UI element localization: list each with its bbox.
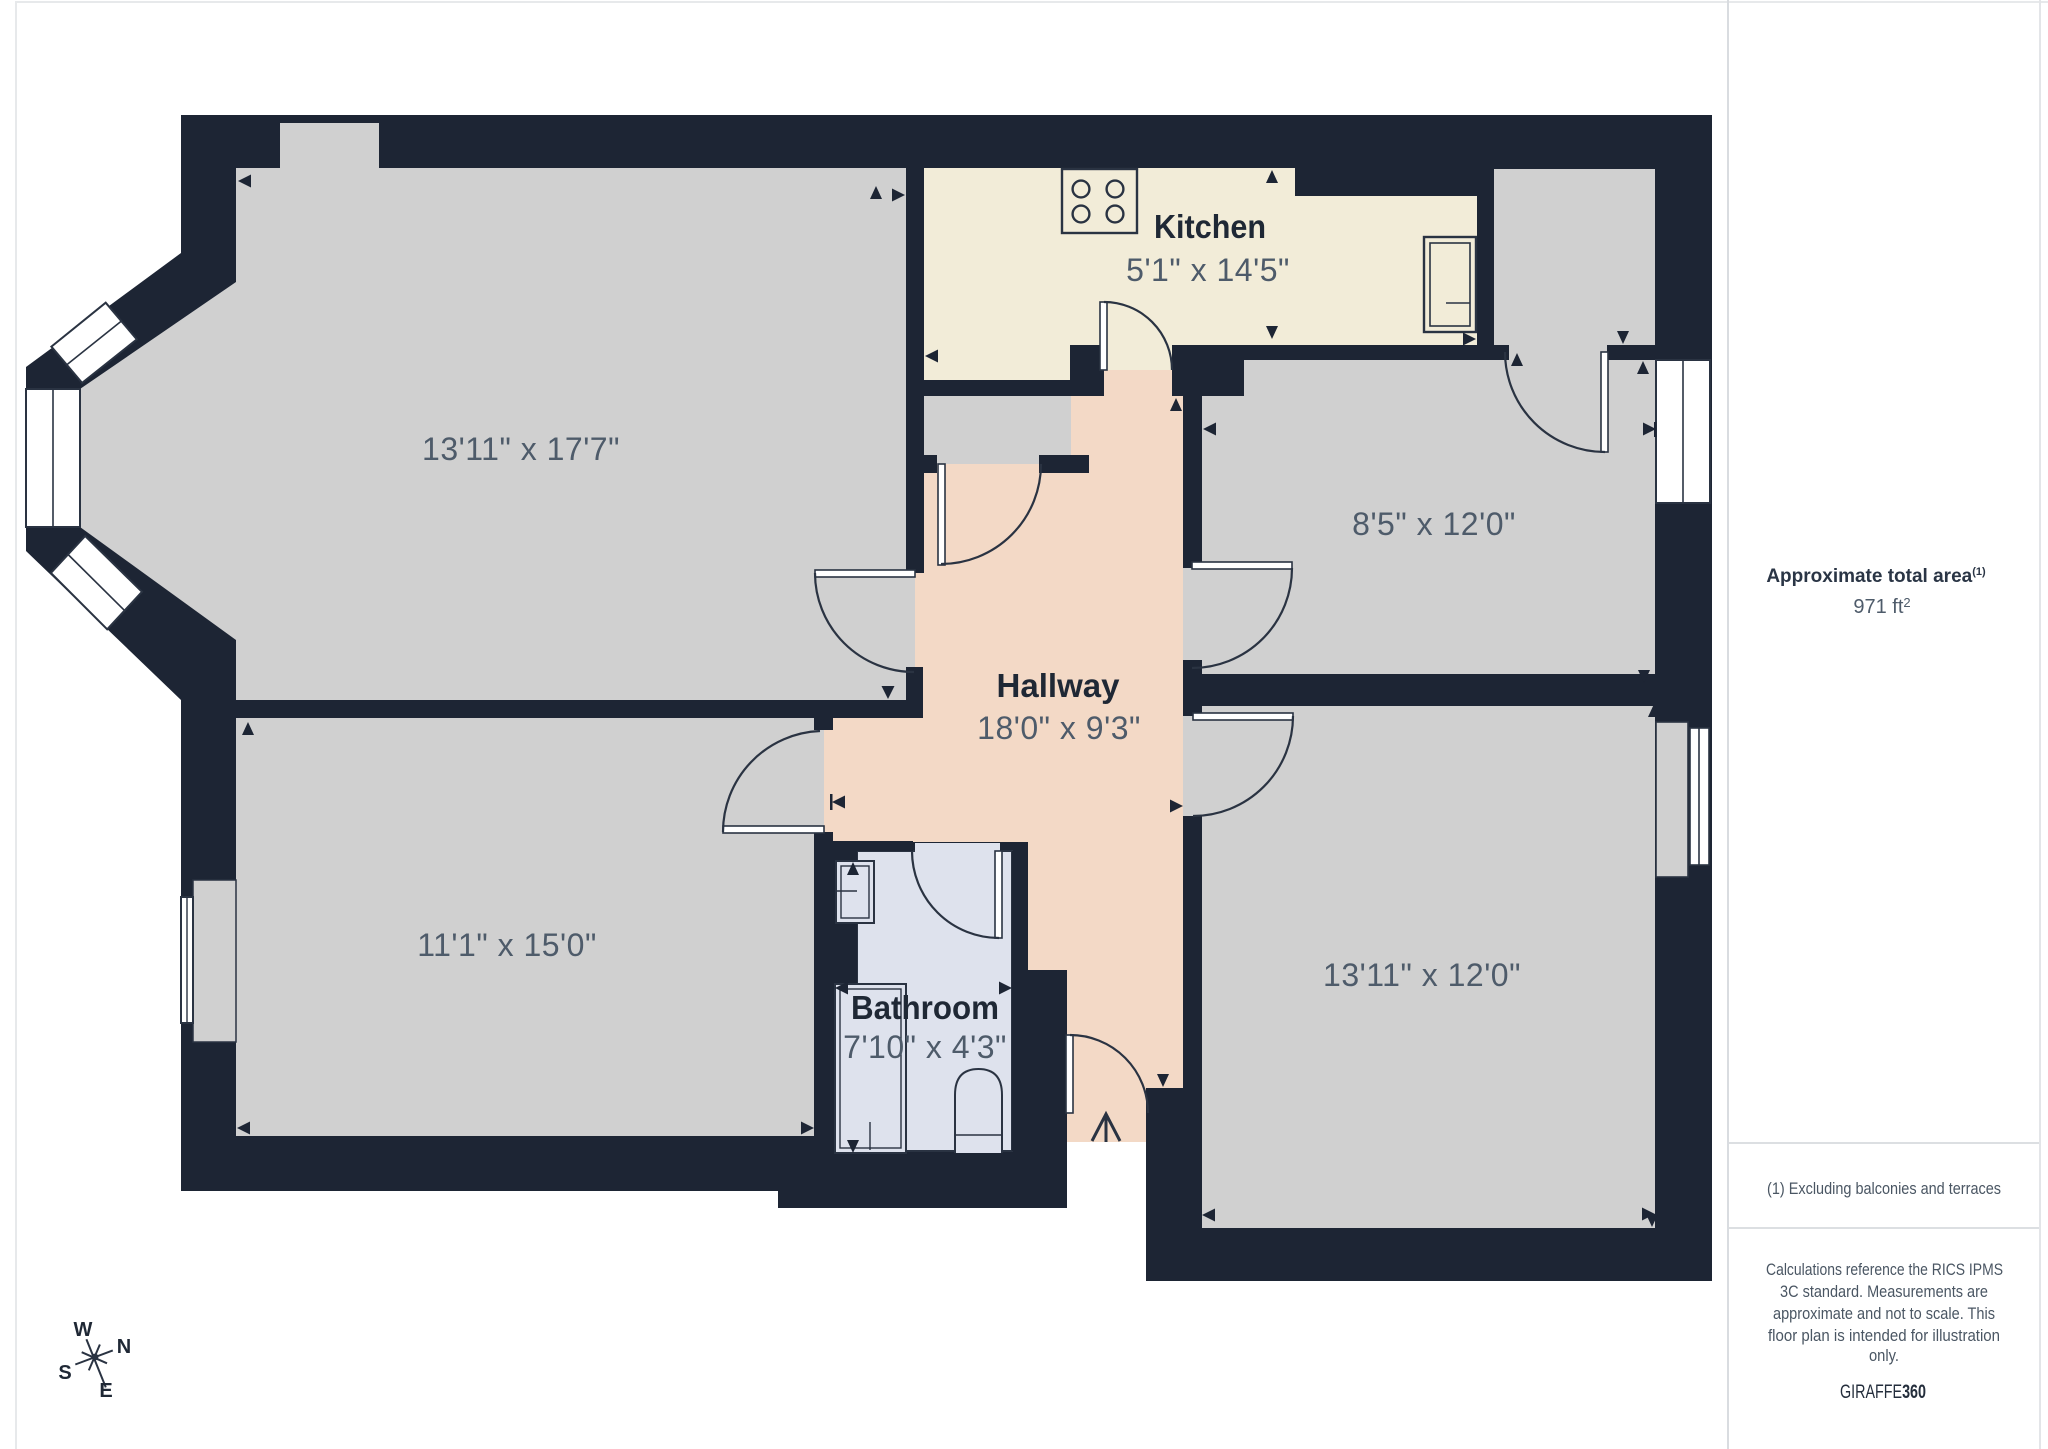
svg-text:(1) Excluding balconies and te: (1) Excluding balconies and terraces	[1767, 1179, 2001, 1198]
svg-text:Hallway: Hallway	[997, 667, 1121, 704]
svg-text:971 ft2: 971 ft2	[1853, 595, 1910, 618]
svg-text:W: W	[74, 1319, 93, 1341]
svg-text:18'0" x 9'3": 18'0" x 9'3"	[977, 710, 1141, 746]
svg-text:floor plan is intended for ill: floor plan is intended for illustration	[1768, 1326, 2000, 1345]
svg-text:3C standard. Measurements are: 3C standard. Measurements are	[1780, 1282, 1988, 1301]
svg-text:only.: only.	[1869, 1346, 1899, 1365]
svg-text:E: E	[99, 1380, 112, 1402]
svg-text:approximate and not to scale.: approximate and not to scale. This	[1773, 1304, 1995, 1323]
svg-text:13'11" x 17'7": 13'11" x 17'7"	[422, 431, 620, 467]
svg-text:N: N	[117, 1336, 131, 1358]
svg-text:Approximate total area(1): Approximate total area(1)	[1766, 566, 1986, 587]
svg-text:Bathroom: Bathroom	[851, 989, 999, 1026]
svg-text:GIRAFFE360: GIRAFFE360	[1840, 1382, 1926, 1403]
svg-text:7'10" x 4'3": 7'10" x 4'3"	[843, 1029, 1007, 1065]
svg-text:8'5" x 12'0": 8'5" x 12'0"	[1352, 506, 1516, 542]
svg-text:Calculations reference the RIC: Calculations reference the RICS IPMS	[1766, 1260, 2003, 1279]
svg-text:Kitchen: Kitchen	[1154, 208, 1266, 245]
svg-text:S: S	[58, 1362, 71, 1384]
svg-text:13'11" x 12'0": 13'11" x 12'0"	[1323, 957, 1521, 993]
svg-text:5'1" x 14'5": 5'1" x 14'5"	[1126, 252, 1290, 288]
svg-text:11'1" x 15'0": 11'1" x 15'0"	[417, 927, 597, 963]
